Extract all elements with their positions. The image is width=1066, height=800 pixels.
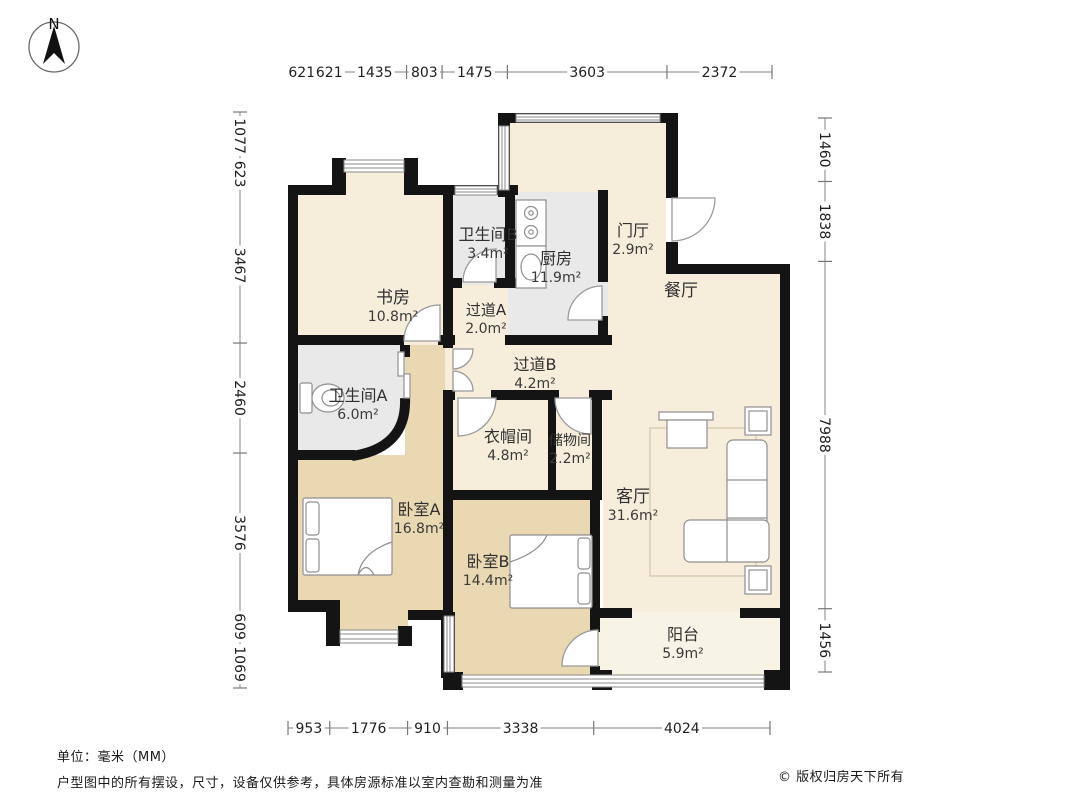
room-label-kitchen: 厨房 bbox=[540, 249, 572, 268]
room-floor-bedroom-a-entry bbox=[405, 345, 445, 465]
svg-text:609: 609 bbox=[231, 613, 247, 640]
room-area-bath-b: 3.4m² bbox=[467, 246, 509, 262]
window-bath-b bbox=[455, 186, 497, 195]
room-area-living: 31.6m² bbox=[608, 508, 658, 524]
svg-text:1456: 1456 bbox=[816, 623, 832, 659]
room-label-study: 书房 bbox=[376, 288, 410, 308]
room-area-bath-a: 6.0m² bbox=[337, 407, 379, 423]
room-area-foyer: 2.9m² bbox=[612, 242, 654, 258]
dim-value-top-6: 2372 bbox=[699, 63, 739, 81]
dim-line-left: 10776233467246035766091069 bbox=[231, 112, 249, 688]
dim-value-right-3: 1456 bbox=[816, 620, 834, 660]
svg-text:953: 953 bbox=[296, 721, 323, 737]
room-label-bedroom-b: 卧室B bbox=[467, 552, 510, 571]
room-area-kitchen: 11.9m² bbox=[531, 270, 581, 286]
dim-line-top: 6216211435803147536032372 bbox=[286, 63, 772, 81]
room-label-dining: 餐厅 bbox=[664, 281, 698, 301]
side-table-bottom bbox=[745, 566, 771, 594]
svg-text:2372: 2372 bbox=[702, 65, 738, 81]
room-area-study: 10.8m² bbox=[368, 309, 418, 325]
svg-text:1069: 1069 bbox=[231, 646, 247, 682]
svg-text:2460: 2460 bbox=[231, 380, 247, 416]
dim-value-top-0: 621 bbox=[286, 63, 318, 81]
room-area-cloakroom: 4.8m² bbox=[487, 448, 529, 464]
svg-text:3467: 3467 bbox=[231, 248, 247, 284]
svg-text:1077: 1077 bbox=[231, 118, 247, 154]
room-label-hall-a: 过道A bbox=[466, 301, 507, 319]
unit-note: 单位：毫米（MM） bbox=[57, 746, 175, 765]
svg-text:910: 910 bbox=[414, 721, 441, 737]
window-study-bay bbox=[344, 160, 404, 172]
svg-text:1838: 1838 bbox=[816, 204, 832, 240]
room-label-bath-b: 卫生间B bbox=[459, 225, 518, 244]
svg-text:621: 621 bbox=[316, 65, 343, 81]
svg-text:1460: 1460 bbox=[816, 132, 832, 168]
dim-value-right-2: 7988 bbox=[816, 415, 834, 455]
copyright: © 版权归房天下所有 bbox=[778, 766, 904, 785]
dim-value-top-5: 3603 bbox=[567, 63, 607, 81]
dim-value-left-1: 623 bbox=[231, 158, 249, 190]
side-table-top bbox=[745, 407, 771, 435]
dim-value-top-4: 1475 bbox=[455, 63, 495, 81]
window-bedroom-b-left bbox=[444, 616, 454, 672]
dim-value-left-2: 3467 bbox=[231, 246, 249, 286]
room-area-balcony: 5.9m² bbox=[662, 646, 704, 662]
svg-text:4024: 4024 bbox=[664, 721, 700, 737]
room-label-living: 客厅 bbox=[616, 487, 650, 507]
room-label-cloakroom: 衣帽间 bbox=[484, 427, 532, 446]
window-bedroom-a-bay bbox=[340, 630, 398, 643]
room-area-hall-a: 2.0m² bbox=[465, 321, 507, 337]
dim-value-bottom-4: 4024 bbox=[662, 719, 702, 737]
dim-value-left-6: 1069 bbox=[231, 644, 249, 684]
bath-a-sliding-door-a bbox=[398, 352, 404, 376]
dim-value-left-0: 1077 bbox=[231, 116, 249, 156]
dim-value-bottom-0: 953 bbox=[293, 719, 325, 737]
bed-bedroom-b bbox=[510, 535, 592, 608]
room-floor-balcony bbox=[598, 612, 782, 678]
dim-value-top-2: 1435 bbox=[355, 63, 395, 81]
dim-value-left-3: 2460 bbox=[231, 378, 249, 418]
compass: N bbox=[29, 15, 79, 72]
svg-text:1475: 1475 bbox=[457, 65, 493, 81]
svg-text:7988: 7988 bbox=[816, 417, 832, 453]
svg-text:803: 803 bbox=[411, 65, 438, 81]
dim-value-top-3: 803 bbox=[409, 63, 441, 81]
room-label-bath-a: 卫生间A bbox=[329, 386, 388, 405]
room-area-storage: 2.2m² bbox=[549, 451, 591, 467]
svg-text:3338: 3338 bbox=[503, 721, 539, 737]
dim-value-right-1: 1838 bbox=[816, 201, 834, 241]
dim-value-bottom-2: 910 bbox=[412, 719, 444, 737]
entry-door bbox=[672, 198, 715, 241]
room-label-foyer: 门厅 bbox=[617, 221, 649, 240]
svg-text:3603: 3603 bbox=[569, 65, 605, 81]
floorplan-page: 书房10.8m²卫生间B3.4m²厨房11.9m²门厅2.9m²餐厅过道A2.0… bbox=[0, 0, 1066, 800]
dim-line-right: 1460183879881456 bbox=[816, 118, 834, 672]
window-south-band bbox=[462, 675, 764, 687]
dim-value-bottom-1: 1776 bbox=[349, 719, 389, 737]
window-north-top bbox=[516, 114, 660, 122]
svg-text:623: 623 bbox=[231, 161, 247, 188]
room-label-hall-b: 过道B bbox=[514, 355, 557, 374]
svg-text:3576: 3576 bbox=[231, 515, 247, 551]
room-label-balcony: 阳台 bbox=[667, 625, 699, 644]
tv-cabinet bbox=[659, 412, 713, 448]
window-north-left bbox=[499, 126, 509, 190]
disclaimer: 户型图中的所有摆设，尺寸，设备仅供参考，具体房源标准以室内查勘和测量为准 bbox=[57, 772, 543, 791]
dim-value-bottom-3: 3338 bbox=[501, 719, 541, 737]
compass-n-label: N bbox=[48, 15, 59, 33]
dim-value-left-5: 609 bbox=[231, 611, 249, 643]
room-area-bedroom-a: 16.8m² bbox=[394, 521, 444, 537]
dim-value-left-4: 3576 bbox=[231, 513, 249, 553]
dim-line-bottom: 953177691033384024 bbox=[288, 719, 770, 737]
bath-a-sliding-door-b bbox=[404, 374, 410, 398]
bed-bedroom-a bbox=[303, 498, 392, 575]
floorplan-canvas: 书房10.8m²卫生间B3.4m²厨房11.9m²门厅2.9m²餐厅过道A2.0… bbox=[0, 0, 1066, 800]
dim-value-right-0: 1460 bbox=[816, 130, 834, 170]
room-label-storage: 储物间 bbox=[549, 433, 591, 449]
svg-text:1435: 1435 bbox=[357, 65, 393, 81]
svg-text:1776: 1776 bbox=[351, 721, 387, 737]
room-area-hall-b: 4.2m² bbox=[514, 376, 556, 392]
svg-text:621: 621 bbox=[288, 65, 315, 81]
room-area-bedroom-b: 14.4m² bbox=[463, 573, 513, 589]
room-label-bedroom-a: 卧室A bbox=[398, 500, 441, 519]
dim-value-top-1: 621 bbox=[313, 63, 345, 81]
